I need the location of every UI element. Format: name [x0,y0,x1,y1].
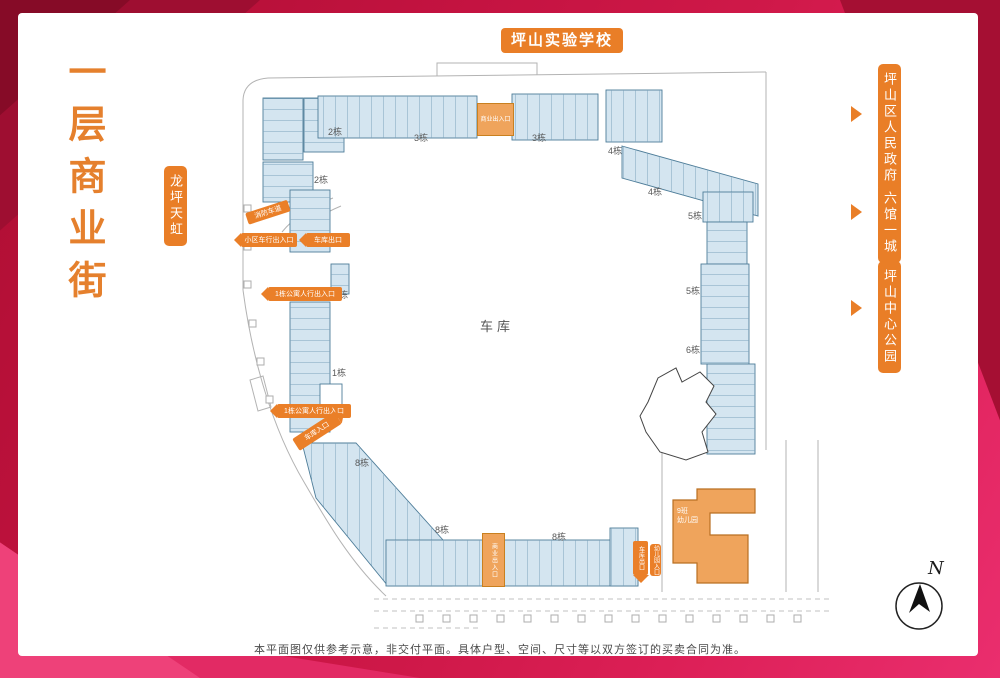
disclaimer-text: 本平面图仅供参考示意，非交付平面。具体户型、空间、尺寸等以双方签订的买卖合同为准… [0,641,1000,657]
entrance-marker-label: 小区车行出入口 [245,237,294,244]
kindergarten-label-line2: 幼儿园 [677,516,698,525]
building-label: 5栋 [686,287,700,296]
building-label: 6栋 [686,346,700,355]
kindergarten-label-line1: 9班 [677,507,698,516]
white-outline-building [640,368,716,460]
building-label: 8栋 [355,459,369,468]
building-label: 3栋 [532,134,546,143]
kindergarten-building [673,489,755,583]
entrance-marker: 车库出口 [633,541,648,575]
entrance-marker-label: 幼儿园入口 [653,545,659,575]
entrance-marker: 商业出入口 [482,533,505,587]
landmark-badge-government: 坪山区人民政府 [878,64,901,192]
entrance-marker: 小区车行出入口 [241,233,297,247]
landmark-badge-longping-tianhong: 龙坪天虹 [164,166,187,246]
entrance-marker-label: 车库出口 [638,546,644,570]
page-title: 一层商业街 [56,52,111,312]
building-label: 2栋 [314,176,328,185]
building-label: 1栋 [332,369,346,378]
entrance-marker: 1栋公寓人行出入口 [268,287,342,301]
entrance-marker-label: 商业出入口 [480,117,510,123]
building-label: 2栋 [328,128,342,137]
landmark-arrow-icon [851,300,862,316]
building-label: 3栋 [414,134,428,143]
entrance-marker-label: 1栋公寓人行出入口 [275,291,335,298]
building-label: 5栋 [688,212,702,221]
landmark-badge-school: 坪山实验学校 [501,28,623,53]
kindergarten-label: 9班 幼儿园 [677,507,698,526]
building-label: 4栋 [648,188,662,197]
landmark-arrow-icon [851,204,862,220]
entrance-marker-label: 车库出口 [314,237,342,244]
garage-label: 车库 [480,316,514,335]
entrance-marker: 幼儿园入口 [650,544,661,576]
north-needle-icon [909,584,930,613]
north-compass [896,583,942,629]
landmark-badge-liuguan-yicheng: 六馆一城 [878,183,901,263]
landmark-badge-central-park: 坪山中心公园 [878,261,901,373]
building-label: 8栋 [552,533,566,542]
entrance-marker: 车库出口 [306,233,350,247]
north-label: N [928,558,944,579]
landmark-arrow-icon [851,106,862,122]
building-label: 8栋 [435,526,449,535]
entrance-marker: 商业出入口 [477,103,514,136]
entrance-marker-label: 商业出入口 [491,543,497,578]
building-label: 4栋 [608,147,622,156]
